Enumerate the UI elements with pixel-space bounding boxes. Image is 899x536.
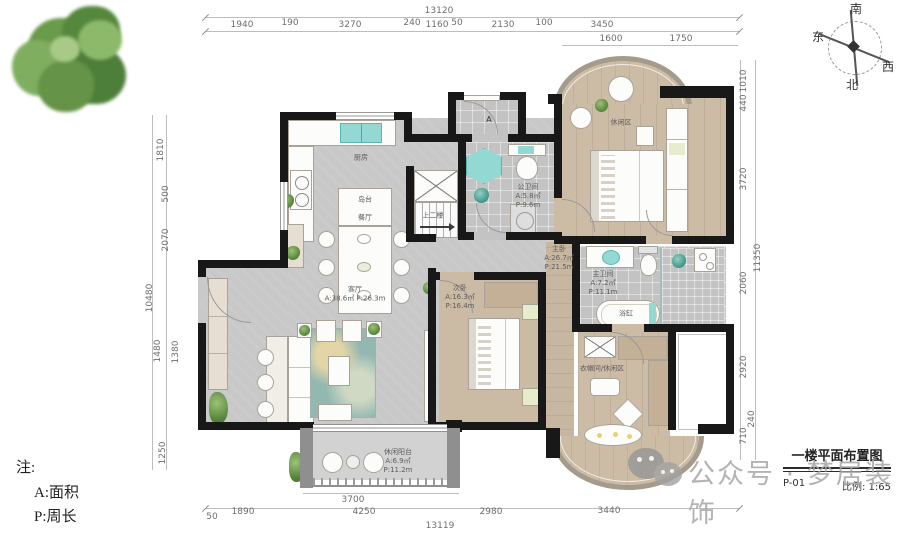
room-area: A:5.8㎡ (515, 192, 540, 201)
side-table (590, 378, 620, 396)
room-perimeter: P:16.4m (445, 301, 475, 310)
toilet-lid (518, 146, 534, 154)
dim-label: 1940 (231, 20, 254, 30)
wall (726, 332, 734, 432)
note-perimeter: P:周长 (34, 505, 79, 526)
door-opening (646, 236, 672, 244)
bath-shelf (694, 248, 716, 272)
dim-line (740, 60, 741, 460)
dim-label: 3700 (342, 495, 365, 505)
room-perimeter: P:11.1m (589, 287, 618, 296)
dim-label: 50 (451, 18, 462, 28)
plant (209, 392, 228, 424)
wall (538, 272, 546, 430)
balcony-chair (322, 452, 343, 473)
wall (698, 424, 734, 434)
room-area: A:38.6㎡ P:26.3m (325, 294, 386, 303)
wall (668, 332, 676, 430)
door-opening (554, 198, 562, 232)
dim-label: 2070 (161, 229, 171, 252)
watermark-text: 公众号 · 梦居装饰 (688, 452, 899, 530)
dim-label: 190 (281, 18, 298, 28)
dim-line (205, 508, 740, 509)
room-name: 厨房 (354, 154, 368, 163)
pillows (601, 155, 615, 219)
room-name: 浴缸 (619, 310, 633, 319)
decor-dot (597, 433, 602, 438)
balcony-chair (363, 452, 384, 473)
dim-label: 11350 (753, 244, 763, 273)
wall (518, 92, 526, 136)
kitchen-sink (340, 123, 382, 143)
dim-label: 240 (747, 410, 757, 427)
toilet-tank (638, 246, 658, 254)
label-leisure: 休闲区 (611, 119, 632, 128)
dim-label: 3450 (591, 20, 614, 30)
wechat-eye (649, 456, 654, 461)
stair-storage (414, 170, 458, 202)
headboard (469, 319, 476, 389)
door-opening (198, 277, 206, 323)
cabinet-divider (209, 353, 227, 354)
room-area: A:7.2㎡ (589, 279, 618, 288)
tree-foliage (38, 60, 94, 112)
ottoman-bench (318, 404, 352, 421)
label-balcony: 休闲阳台 A:6.9㎡ P:11.2m (384, 448, 413, 474)
room-perimeter: P:11.2m (384, 465, 413, 474)
wechat-icon (628, 444, 684, 494)
room-name: 次卧 (445, 284, 475, 293)
wechat-eye (637, 457, 642, 462)
entry-door-leaf (462, 95, 500, 101)
dim-label: 1750 (670, 34, 693, 44)
dim-label: 3270 (339, 20, 362, 30)
toilet-bowl (516, 156, 538, 180)
wardrobe-shelf (669, 143, 685, 155)
nightstand (522, 304, 539, 320)
label-closet: 衣帽间/休闲区 (580, 365, 624, 374)
compass-east: 东 (812, 28, 824, 45)
label-living: 客厅 A:38.6㎡ P:26.3m (325, 285, 386, 303)
wall (458, 136, 466, 240)
dining-chair (318, 259, 335, 276)
tree-illustration (10, 2, 132, 120)
shower-glass (660, 248, 662, 324)
burner (295, 176, 309, 190)
room-name: 岛台 (358, 196, 372, 205)
dim-label: 1010 (739, 70, 749, 93)
armchair (342, 320, 362, 342)
room-name: 公卫间 (515, 183, 540, 192)
compass-west: 西 (882, 58, 894, 75)
shelf-dot (706, 262, 714, 270)
wall (546, 428, 560, 458)
floor-plan-canvas: 厨房 岛台 餐厅 上二楼 客厅 A:38.6㎡ P:26.3m 公卫间 A:5.… (0, 0, 899, 536)
bar-stool (257, 349, 274, 366)
label-stairs: 上二楼 (423, 212, 444, 221)
place-setting (357, 234, 371, 244)
wall (554, 236, 734, 244)
bar-stool (257, 374, 274, 391)
dim-label: 1810 (156, 139, 166, 162)
wall (198, 422, 314, 430)
dim-label: 1250 (158, 442, 168, 465)
note-block: 注: A:面积 P:周长 (16, 456, 79, 526)
cabinet-divider (209, 316, 227, 317)
balcony-railing (313, 478, 447, 487)
wechat-eye (670, 469, 674, 473)
armchair (316, 320, 336, 342)
bar-stool (257, 401, 274, 418)
wall (198, 260, 288, 268)
dim-label: 1600 (600, 34, 623, 44)
label-island: 岛台 (358, 196, 372, 205)
balcony-wall (300, 428, 313, 488)
dining-chair (318, 231, 335, 248)
dim-line (205, 31, 740, 32)
bed (468, 318, 520, 390)
door-opening (440, 272, 474, 280)
room-perimeter: P:9.6m (515, 200, 540, 209)
decor-dot (613, 432, 618, 437)
stove (290, 170, 312, 210)
door-opening (472, 134, 508, 142)
compass-north: 北 (846, 76, 858, 93)
dim-label: 10480 (145, 284, 155, 313)
note-head: 注: (16, 456, 79, 477)
room-name: 休闲阳台 (384, 448, 413, 457)
wall (548, 94, 562, 104)
bay-chair (608, 76, 634, 102)
dim-line (166, 115, 167, 470)
section-letter: A (486, 115, 491, 124)
tree-foliage (78, 20, 122, 60)
floor-void (678, 334, 728, 430)
place-setting (357, 262, 371, 272)
dim-label: 100 (535, 18, 552, 28)
wall (448, 92, 456, 136)
wechat-bubble-small (654, 462, 682, 486)
toilet-bowl (640, 254, 657, 276)
dim-label: 3440 (598, 506, 621, 516)
towel (649, 303, 656, 326)
dim-tick (736, 28, 743, 35)
label-master-bath: 主卫间 A:7.2㎡ P:11.1m (589, 270, 618, 296)
dining-chair (393, 259, 410, 276)
compass-south: 南 (850, 0, 862, 17)
dim-label: 1160 (426, 20, 449, 30)
wardrobe-divider (667, 139, 687, 140)
wardrobe-divider (667, 189, 687, 190)
wall (406, 166, 414, 242)
room-area: A:16.3㎡ (445, 293, 475, 302)
dim-label: 4250 (353, 507, 376, 517)
section-mark-a: A (486, 115, 491, 125)
room-name: 客厅 (325, 285, 386, 294)
dim-label: 440 (739, 94, 749, 111)
label-bedroom2: 次卧 A:16.3㎡ P:16.4m (445, 284, 475, 310)
dim-label: 1380 (171, 341, 181, 364)
label-bathtub: 浴缸 (619, 310, 633, 319)
wall (406, 234, 436, 242)
door-opening (612, 324, 644, 332)
dim-label: 2130 (492, 20, 515, 30)
floor-corridor (546, 242, 574, 458)
arrow-head-icon (449, 223, 455, 231)
room-perimeter: P:21.5m (544, 262, 574, 271)
compass: 南 东 西 北 (808, 4, 899, 92)
room-name: 上二楼 (423, 212, 444, 221)
blanket-fold (505, 319, 506, 389)
dim-line (303, 493, 459, 494)
label-master: 主卧 A:26.7㎡ P:21.5m (544, 245, 574, 271)
wall (458, 232, 554, 240)
dim-label: 2920 (739, 356, 749, 379)
blanket-fold (639, 151, 640, 221)
label-guest-bath: 公卫间 A:5.8㎡ P:9.6m (515, 183, 540, 209)
room-name: 休闲区 (611, 119, 632, 128)
wall (428, 268, 436, 430)
kitchen-window (336, 112, 394, 120)
dim-line (562, 45, 738, 46)
dim-label: 3720 (739, 168, 749, 191)
coffee-table (328, 356, 350, 386)
kitchen-side-window (280, 182, 288, 230)
pillows (478, 323, 491, 385)
headboard (591, 151, 599, 221)
sliding-door (313, 424, 447, 432)
dining-chair (393, 287, 410, 304)
dim-label: 1480 (153, 340, 163, 363)
washer-door (516, 212, 534, 230)
dim-label: 13120 (425, 6, 454, 16)
room-name: 主卫间 (589, 270, 618, 279)
room-area: A:26.7㎡ (544, 254, 574, 263)
sink-divider (361, 124, 362, 142)
note-area: A:面积 (34, 481, 79, 502)
wardrobe (648, 360, 670, 426)
wash-basin (602, 250, 620, 265)
balcony-wall (447, 428, 460, 488)
room-name: 衣帽间/休闲区 (580, 365, 624, 374)
dim-label: 2060 (739, 272, 749, 295)
room-name: 主卧 (544, 245, 574, 254)
oval-table (584, 424, 642, 446)
tree-foliage-highlight (50, 36, 80, 62)
wall (660, 86, 734, 98)
dim-label: 50 (206, 512, 217, 522)
wall (572, 324, 734, 332)
dim-label: 1890 (232, 507, 255, 517)
wall (726, 96, 734, 244)
burner (295, 193, 309, 207)
dim-label: 710 (739, 427, 749, 444)
dim-label: 240 (403, 18, 420, 28)
label-kitchen: 厨房 (354, 154, 368, 163)
dim-label: 13119 (426, 521, 455, 531)
room-name: 餐厅 (358, 214, 372, 223)
room-area: A:6.9㎡ (384, 457, 413, 466)
dim-tick (736, 14, 743, 21)
shelf-dot (699, 253, 707, 261)
dim-label: 2980 (480, 507, 503, 517)
label-dining: 餐厅 (358, 214, 372, 223)
door-opening (474, 232, 506, 240)
stair-direction-arrow (420, 226, 450, 228)
balcony-table (346, 455, 360, 469)
decor-dot (627, 434, 632, 439)
nightstand (636, 126, 654, 146)
dim-label: 500 (161, 185, 171, 202)
wechat-eye (661, 470, 665, 474)
bay-chair (570, 107, 592, 129)
